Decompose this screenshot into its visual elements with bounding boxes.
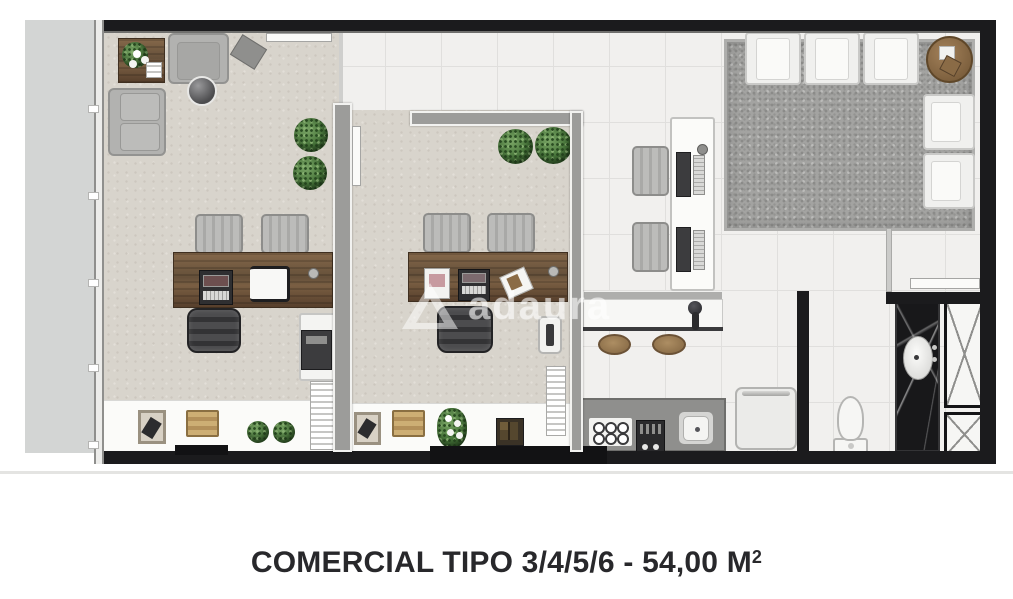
laptop-screen xyxy=(462,273,486,283)
oven-knobs xyxy=(642,444,648,450)
office2-desk-knob xyxy=(548,266,559,277)
office1-guest-chair-2 xyxy=(261,214,309,254)
window-mullion-4 xyxy=(88,364,99,372)
caption-text: COMERCIAL TIPO 3/4/5/6 - 54,00 M xyxy=(251,546,752,579)
triangle-a-logo-icon xyxy=(402,283,458,329)
wall-sofa-cushion-2 xyxy=(120,123,160,151)
office2-right-wall xyxy=(570,111,583,452)
lounge-seat-3 xyxy=(863,32,919,85)
bar-faucet-stem xyxy=(692,312,699,330)
left-window-wall xyxy=(94,20,104,464)
window-mullion-2 xyxy=(88,192,99,200)
task-chair-2 xyxy=(632,222,669,272)
armchair-cushion xyxy=(931,102,961,142)
workstation-keyboard-1 xyxy=(693,155,705,195)
office2-top-wall xyxy=(410,111,583,126)
wall-shadow-line xyxy=(0,471,1013,474)
printer-slot xyxy=(306,336,327,344)
lounge-seat-1 xyxy=(745,32,801,85)
office1-printer xyxy=(301,330,332,370)
oven-grill xyxy=(640,424,661,434)
flush-button xyxy=(848,443,854,449)
lounge-seat-cushion xyxy=(874,38,908,80)
kitchen-oven xyxy=(636,420,665,455)
side-table-books xyxy=(146,62,162,78)
burner-row-2 xyxy=(593,433,605,445)
round-side-table xyxy=(926,36,973,83)
workstation-keyboard-2 xyxy=(693,230,705,270)
lounge-seat-2 xyxy=(804,32,860,85)
office1-entry-notch xyxy=(175,445,228,455)
frame-photo xyxy=(357,418,376,439)
office2-guest-chair-1 xyxy=(423,213,471,253)
watermark-text: adaura xyxy=(468,284,611,329)
balcony-slab xyxy=(25,20,98,453)
lounge-seat-cushion xyxy=(815,38,849,80)
office1-guest-chair-1 xyxy=(195,214,243,254)
caption-superscript: 2 xyxy=(752,547,762,567)
office1-tablet xyxy=(250,266,290,302)
bar-stool-1 xyxy=(598,334,631,355)
office2-decor-frame xyxy=(354,412,381,445)
office2-shelf-stack xyxy=(546,366,566,436)
vanity-sink-drain xyxy=(914,355,919,360)
laptop-screen xyxy=(203,275,229,287)
office2-storage-box xyxy=(496,418,524,446)
bathroom-door-jamb xyxy=(886,228,892,292)
bathroom-door-leaf xyxy=(910,278,980,289)
bar-stool-2 xyxy=(652,334,686,355)
flower-decor xyxy=(133,50,141,58)
office1-executive-chair xyxy=(187,308,241,353)
office2-wood-crate xyxy=(392,410,425,437)
round-coffee-table xyxy=(187,76,217,106)
vanity-taps xyxy=(932,345,937,350)
office1-door-leaf xyxy=(266,33,332,42)
office2-plant-2 xyxy=(535,127,572,164)
sink-drain xyxy=(695,427,700,432)
office1-laptop xyxy=(199,270,233,305)
task-chair-1 xyxy=(632,146,669,196)
top-armchair-seat xyxy=(177,42,220,80)
armchair-cushion xyxy=(931,161,961,201)
refrigerator-handle xyxy=(742,391,790,396)
laptop-keys xyxy=(203,291,229,300)
office2-door-leaf xyxy=(352,126,361,186)
office2-flower-plant xyxy=(437,408,467,448)
office2-flowers xyxy=(445,415,452,422)
bathroom-top-wall xyxy=(886,292,985,304)
window-mullion-3 xyxy=(88,279,99,287)
office1-wood-crate xyxy=(186,410,219,437)
floor-plan-page: adaura COMERCIAL TIPO 3/4/5/6 - 54,00 M2 xyxy=(0,0,1013,599)
window-mullion-1 xyxy=(88,105,99,113)
frame-photo xyxy=(141,417,162,439)
office1-plant-1 xyxy=(294,118,328,152)
workstation-monitor-1 xyxy=(676,152,691,197)
office2-guest-chair-2 xyxy=(487,213,535,253)
right-wall xyxy=(980,20,996,464)
wall-sofa-cushion-1 xyxy=(120,93,160,121)
lounge-seat-cushion xyxy=(756,38,790,80)
watermark: adaura xyxy=(402,283,611,329)
office1-plant-2 xyxy=(293,156,327,190)
office1-desk-knob xyxy=(308,268,319,279)
office1-glass-partition xyxy=(339,33,343,105)
office-divider-wall xyxy=(333,103,352,452)
workstation-decor xyxy=(697,144,708,155)
office1-decor-frame xyxy=(138,410,166,444)
kitchen-sink xyxy=(677,410,715,446)
lounge-armchair-2 xyxy=(923,153,975,209)
office1-small-plant-2 xyxy=(273,421,295,443)
toilet-bowl xyxy=(837,396,864,441)
lounge-armchair-1 xyxy=(923,94,975,150)
storage-box-grid xyxy=(500,422,518,440)
plan-caption: COMERCIAL TIPO 3/4/5/6 - 54,00 M2 xyxy=(0,546,1013,580)
cooktop xyxy=(588,417,633,447)
office2-plant-1 xyxy=(498,129,533,164)
office1-small-plant-1 xyxy=(247,421,269,443)
shaft-large xyxy=(944,300,985,408)
refrigerator xyxy=(735,387,797,450)
window-mullion-5 xyxy=(88,441,99,449)
kitchen-hall-wall xyxy=(797,291,809,452)
top-wall xyxy=(95,20,996,33)
workstation-monitor-2 xyxy=(676,227,691,272)
